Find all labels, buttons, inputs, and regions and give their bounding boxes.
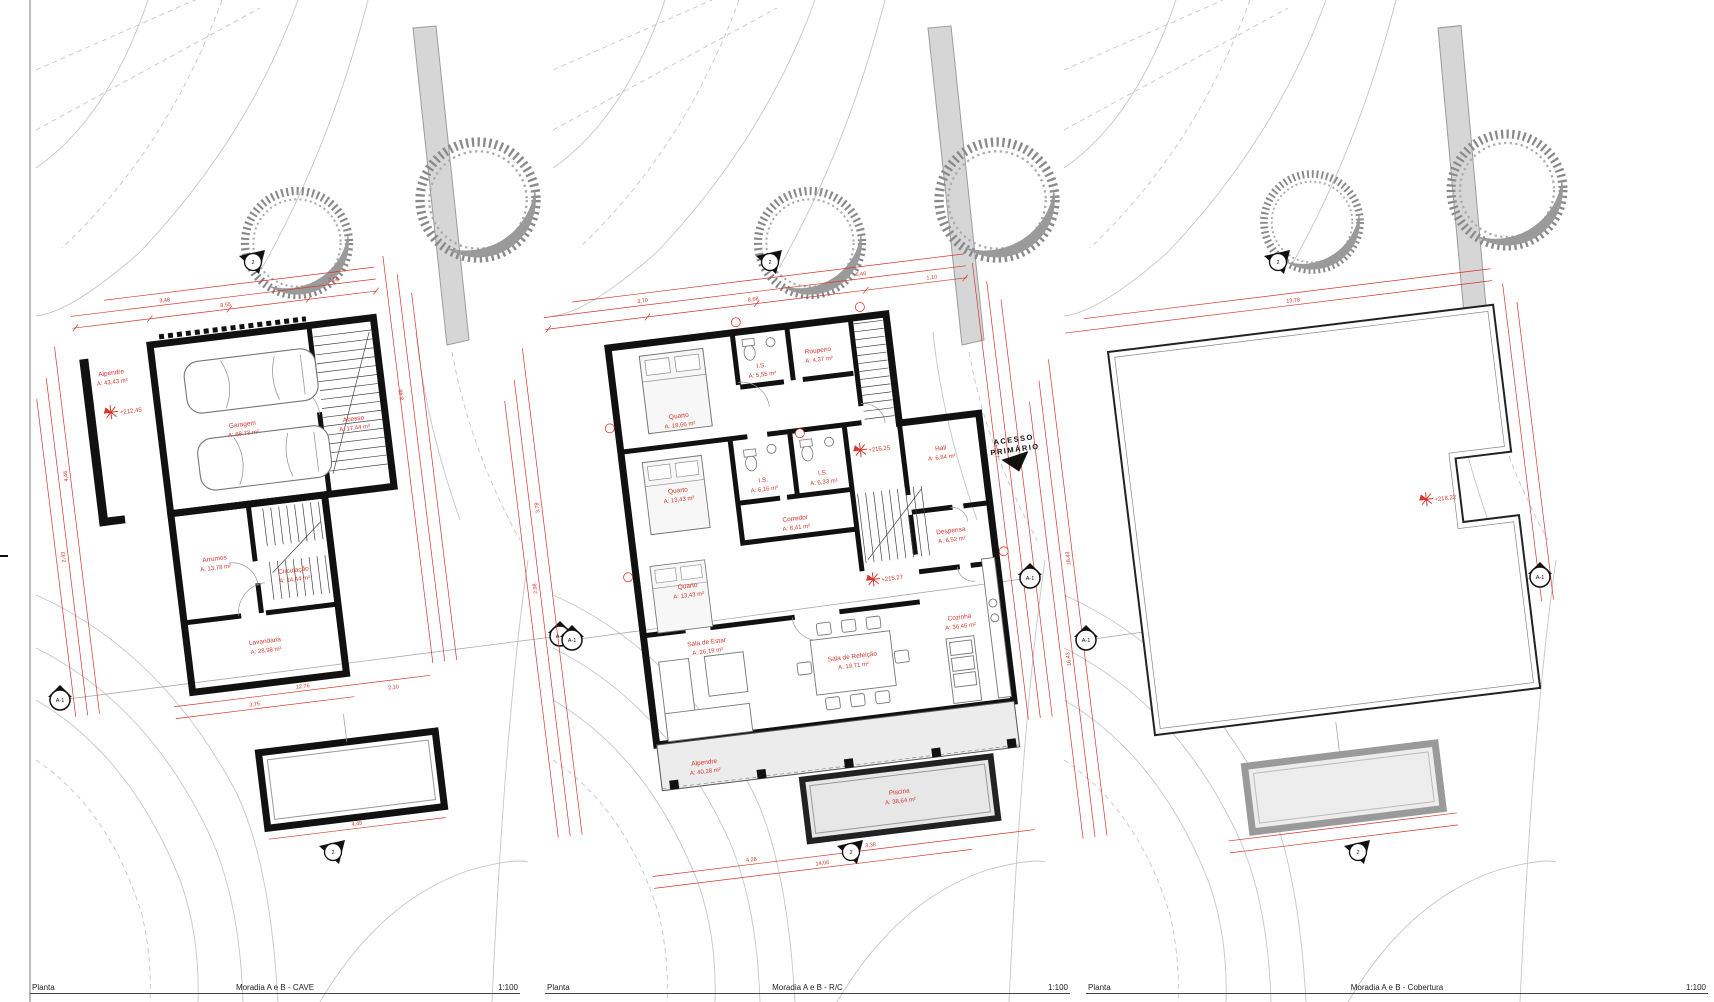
dim-label: 6,46 (855, 271, 866, 278)
elevation-value: +212,45 (120, 407, 143, 416)
room-area: A: 4,37 m² (805, 356, 833, 365)
panel-rc: 8,68 3,70 6,46 1,10 3,78 2,98 13,04 4,28… (494, 0, 1067, 1002)
toilet (742, 338, 757, 361)
interior-walls (175, 499, 334, 622)
dim-label: 3,78 (534, 502, 541, 513)
dim-label: 4,46 (63, 470, 70, 481)
room-label: Circulação (278, 565, 310, 576)
room-label: Garagem (229, 420, 257, 430)
dim-label: 3,48 (159, 297, 170, 304)
dim-label: 2,43 (61, 551, 68, 562)
cobertura-plan: 13,78 18,43 1,10 16,43 +218,22 (1020, 266, 1579, 870)
cave-plan: 8,55 2,68 3,48 4,46 2,43 8,46 12,76 3,75… (25, 253, 476, 861)
titleblock-name: Moradia A e B - Cobertura (1086, 983, 1708, 992)
room-label: Despensa (936, 526, 966, 537)
dim-label: 3,38 (865, 842, 876, 849)
titleblock-scale: 1:100 (1048, 983, 1068, 992)
car-icon (196, 424, 333, 492)
sofa (659, 652, 753, 742)
dim-label: 2,10 (388, 684, 399, 691)
dim-label: 3,75 (249, 701, 260, 708)
titleblock-cobertura: Planta Moradia A e B - Cobertura 1:100 (1086, 978, 1708, 994)
room-label: Acesso (343, 414, 365, 424)
titleblock-rc: Planta Moradia A e B - R/C 1:100 (545, 978, 1070, 994)
room-label: I.S. (818, 469, 829, 477)
road-band (928, 26, 984, 345)
road-band (413, 26, 469, 345)
room-label: Lavandaria (249, 636, 282, 647)
room-area: A: 17,44 m² (339, 424, 371, 434)
elevation-marker-icon (865, 572, 881, 588)
dimension-chains: 8,55 2,68 3,48 4,46 2,43 8,46 12,76 3,75… (25, 253, 476, 861)
sink (824, 437, 834, 447)
toilet (743, 449, 758, 472)
view-marker-label: 2 (331, 850, 334, 856)
titleblock-name: Moradia A e B - CAVE (30, 983, 520, 992)
titleblock-name: Moradia A e B - R/C (545, 983, 1070, 992)
drawing-sheet: 8,55 2,68 3,48 4,46 2,43 8,46 12,76 3,75… (0, 0, 1714, 1002)
pool (255, 703, 444, 828)
stairs-circulacao (263, 502, 330, 600)
room-area: A: 43,43 m² (97, 378, 129, 388)
section-marker-label: A-1 (568, 638, 577, 644)
room-label: Cozinha (947, 613, 972, 623)
tree-icon (758, 191, 862, 295)
titleblock-scale: 1:100 (498, 983, 518, 992)
toilet (800, 439, 815, 462)
section-marker-label: A-1 (1082, 638, 1091, 644)
room-area: A: 13,78 m² (200, 564, 232, 574)
rc-plan: 8,68 3,70 6,46 1,10 3,78 2,98 13,04 4,28… (494, 250, 1067, 899)
room-label: Alpendre (98, 368, 125, 378)
room-label: I.S. (758, 476, 769, 484)
dim-label: 16,43 (1065, 652, 1073, 666)
dim-label: 8,46 (398, 389, 405, 400)
room-area: A: 5,55 m² (748, 371, 776, 380)
pool (1241, 710, 1444, 832)
dim-label: 12,76 (296, 683, 310, 691)
plans-canvas: 8,55 2,68 3,48 4,46 2,43 8,46 12,76 3,75… (0, 0, 1714, 1002)
interior-stairs (858, 486, 930, 563)
room-area: A: 6,33 m² (810, 478, 838, 487)
sink (766, 444, 776, 454)
room-area: A: 28,98 m² (250, 646, 282, 656)
view-marker-label: 2 (1276, 260, 1279, 266)
elevation-marker-icon (103, 404, 119, 420)
room-label: Roupeiro (804, 346, 831, 356)
dim-label: 4,45 (351, 821, 362, 828)
room-area: A: 8,41 m² (782, 524, 810, 533)
view-marker-label: 2 (849, 850, 852, 856)
dim-label: 3,70 (637, 298, 648, 305)
dim-label: 2,98 (532, 583, 539, 594)
room-area: A: 6,84 m² (928, 453, 956, 462)
sink (765, 337, 775, 347)
section-marker-label: A-1 (56, 698, 65, 704)
panel-cobertura: 13,78 18,43 1,10 16,43 +218,22 A-1 A-1 2 (1020, 0, 1579, 1002)
titleblock-cave: Planta Moradia A e B - CAVE 1:100 (30, 978, 520, 994)
view-marker-label: 2 (1356, 850, 1359, 856)
dim-label: 14,06 (815, 860, 829, 868)
elevation-marker-icon (853, 442, 869, 458)
panel-cave: 8,55 2,68 3,48 4,46 2,43 8,46 12,76 3,75… (25, 0, 572, 1002)
room-label: Hall (935, 444, 948, 452)
room-area: A: 6,52 m² (938, 536, 966, 545)
view-marker-label: 2 (768, 260, 771, 266)
dim-label: 2,68 (328, 277, 339, 284)
room-label: Corredor (782, 514, 809, 524)
roof-outline (1108, 305, 1540, 735)
titleblock-scale: 1:100 (1686, 983, 1706, 992)
room-area: A: 36,46 m² (945, 622, 977, 632)
dim-label: 13,78 (1286, 297, 1300, 305)
room-area: A: 6,16 m² (750, 485, 778, 494)
primary-access-annotation: ACESSO PRIMÁRIO (989, 432, 1043, 476)
dim-label: 4,28 (746, 857, 757, 864)
dim-label: 18,43 (1065, 551, 1073, 565)
section-marker-label: A-1 (1536, 575, 1545, 581)
elevation-value: +215,27 (881, 575, 904, 584)
section-marker-label: A-1 (1026, 576, 1035, 582)
room-label: I.S. (756, 362, 767, 370)
sheet-border (0, 0, 30, 1002)
bed (639, 348, 712, 433)
view-marker-label: 2 (251, 260, 254, 266)
car-icon (182, 347, 319, 415)
dim-label: 1,10 (926, 274, 937, 281)
room-label: Arrumos (202, 554, 228, 564)
bed (642, 455, 710, 534)
room-area: A: 14,44 m² (279, 575, 311, 585)
elevation-value: +215,25 (868, 445, 891, 454)
